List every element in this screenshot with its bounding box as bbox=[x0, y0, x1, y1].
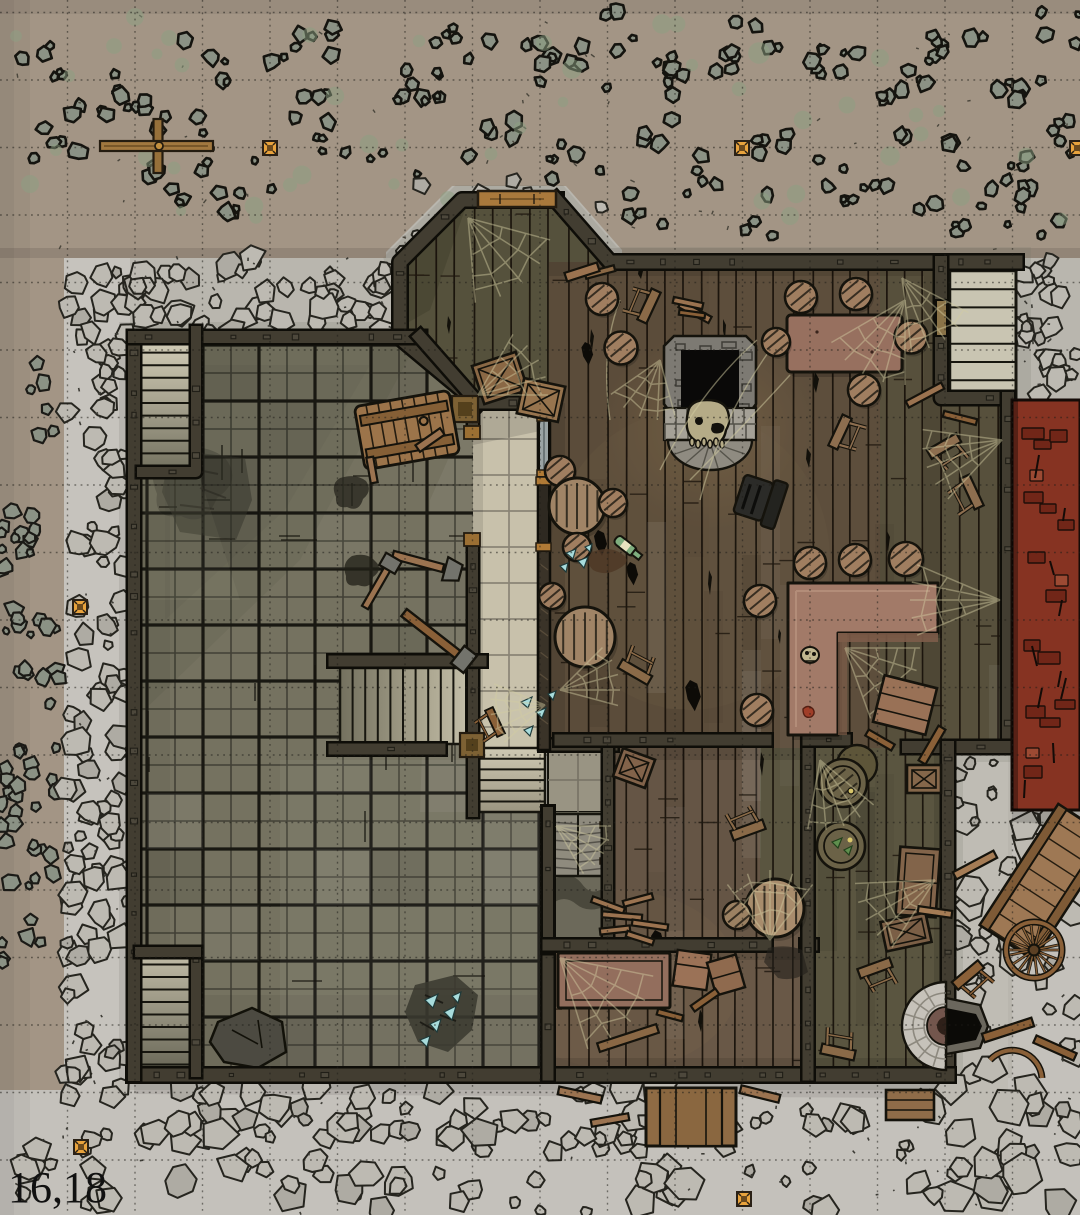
svg-text:16,18: 16,18 bbox=[8, 1163, 107, 1212]
